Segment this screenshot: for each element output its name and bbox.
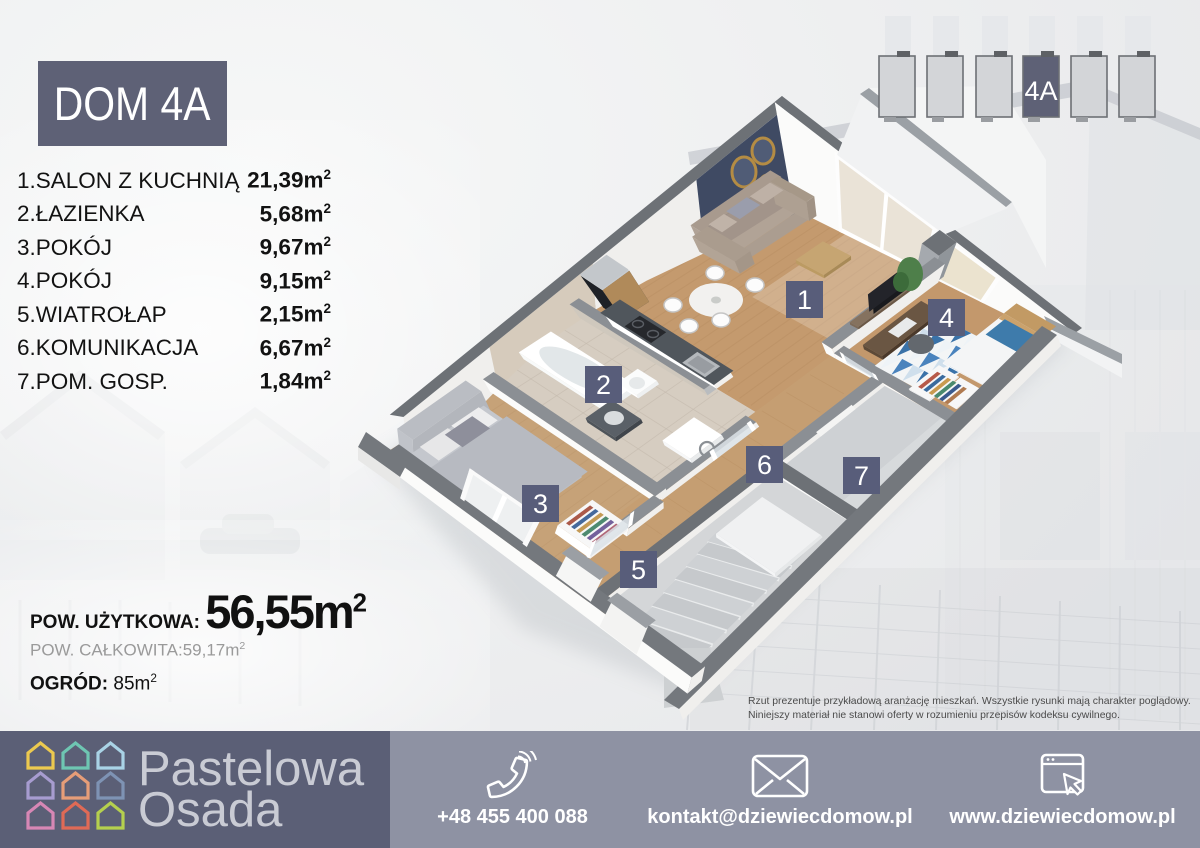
svg-text:7: 7	[854, 461, 869, 491]
svg-text:4A: 4A	[1024, 76, 1057, 106]
svg-text:3: 3	[533, 489, 548, 519]
svg-text:6: 6	[757, 450, 772, 480]
svg-text:4: 4	[939, 303, 954, 333]
svg-text:5: 5	[631, 555, 646, 585]
svg-text:2: 2	[596, 370, 611, 400]
svg-text:1: 1	[797, 285, 812, 315]
